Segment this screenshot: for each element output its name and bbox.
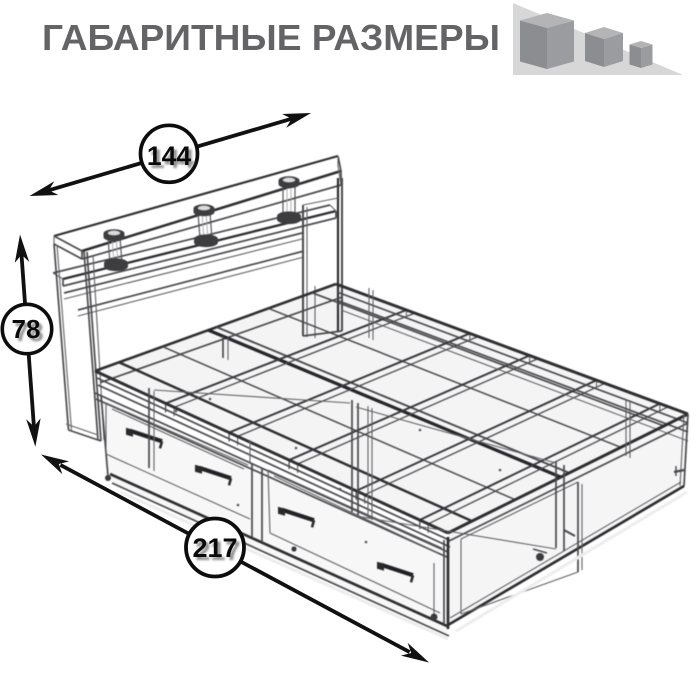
svg-text:78: 78 bbox=[12, 314, 41, 344]
svg-text:217: 217 bbox=[192, 533, 237, 563]
svg-text:144: 144 bbox=[147, 141, 191, 171]
svg-text:ГАБАРИТНЫЕ РАЗМЕРЫ: ГАБАРИТНЫЕ РАЗМЕРЫ bbox=[42, 17, 500, 58]
